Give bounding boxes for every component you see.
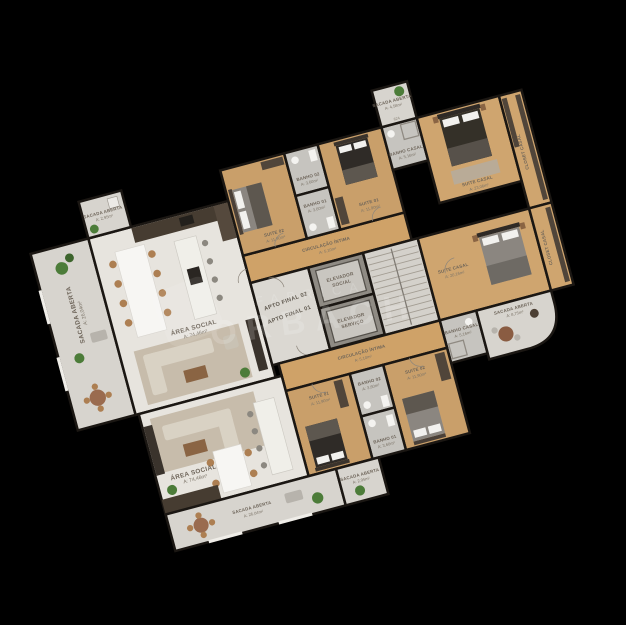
floor-plan-svg: SACADA ABERTA A: 26,04m²: [0, 0, 626, 625]
floor-plan-render: SACADA ABERTA A: 26,04m²: [0, 0, 626, 625]
